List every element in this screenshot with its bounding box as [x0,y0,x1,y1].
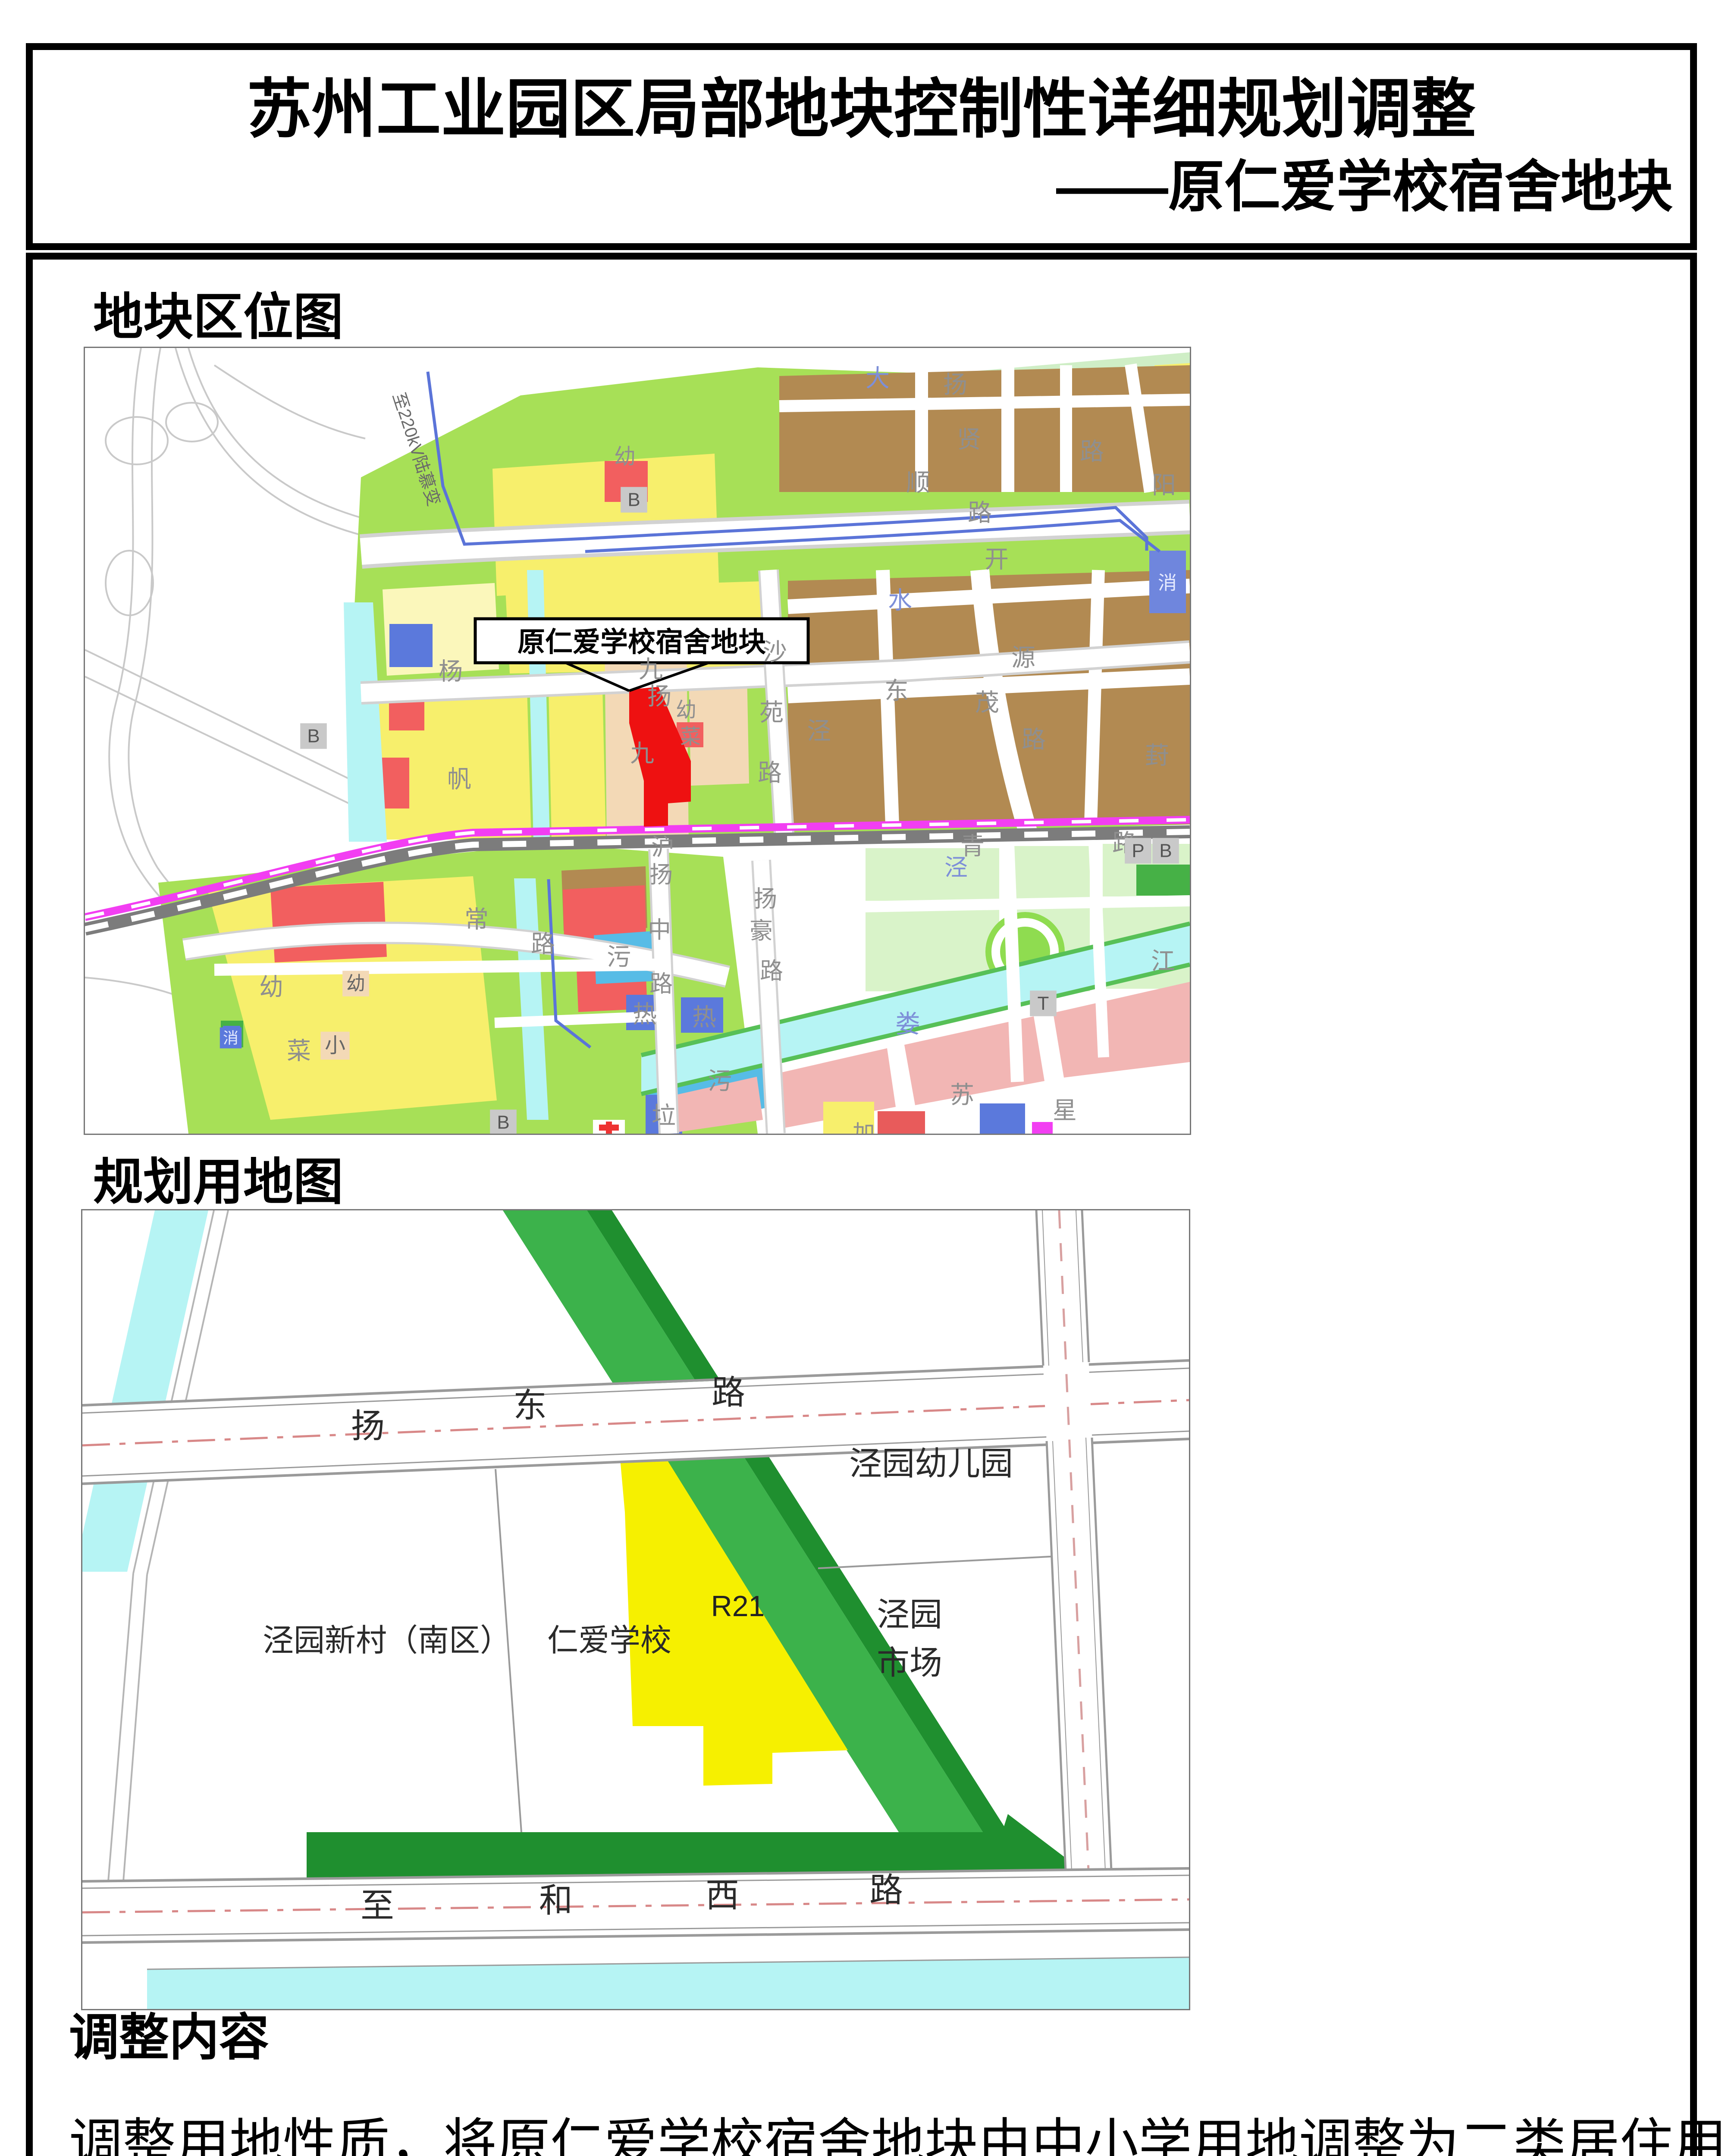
svg-text:苑: 苑 [759,699,784,726]
svg-text:消: 消 [223,1029,238,1047]
svg-text:西: 西 [706,1876,739,1914]
svg-text:路: 路 [968,499,992,526]
svg-text:泾: 泾 [807,718,831,745]
svg-text:帆: 帆 [447,766,471,793]
adjustment-line-1: 调整用地性质，将原仁爱学校宿舍地块由中小学用地调整为二类居住用地 [69,2096,1690,2156]
svg-text:B: B [307,726,320,747]
svg-text:路: 路 [1080,438,1104,465]
svg-text:江: 江 [1151,948,1175,975]
svg-text:消: 消 [1158,573,1177,594]
svg-text:沙: 沙 [763,639,787,666]
svg-text:顺: 顺 [906,469,930,496]
svg-text:娄: 娄 [895,1010,920,1038]
svg-text:幼: 幼 [346,973,365,994]
svg-text:扬: 扬 [754,886,777,912]
page-title: 苏州工业园区局部地块控制性详细规划调整 [33,68,1690,150]
location-map: 原仁爱学校宿舍地块 幼B至220kV陆慕变大扬贤路顺路阳水开东源茂路葑消杨帆沙苑… [84,347,1191,1135]
svg-text:贤: 贤 [957,426,981,453]
title-box: 苏州工业园区局部地块控制性详细规划调整 ——原仁爱学校宿舍地块 [26,43,1697,250]
location-map-heading: 地块区位图 [93,291,343,343]
svg-text:泾园幼儿园: 泾园幼儿园 [849,1446,1013,1482]
planning-map-svg: 扬东路泾园幼儿园泾园市场泾园新村（南区）仁爱学校R21至和西路 [82,1210,1189,2009]
svg-text:幼: 幼 [676,699,696,722]
svg-text:东: 东 [513,1386,547,1424]
park-block [1136,865,1190,896]
svg-text:R21: R21 [711,1590,765,1623]
svg-text:污: 污 [708,1068,732,1095]
svg-text:中: 中 [648,917,671,943]
zhihe-west-road [82,1868,1189,1943]
adjustment-paragraph: 调整用地性质，将原仁爱学校宿舍地块由中小学用地调整为二类居住用地 （宿舍）。原建… [69,2096,1690,2156]
svg-text:茂: 茂 [975,689,999,716]
svg-text:泾园: 泾园 [877,1597,942,1633]
svg-text:源: 源 [1011,644,1035,671]
svg-text:水: 水 [888,587,912,614]
svg-text:扬: 扬 [943,371,967,398]
svg-text:热: 热 [633,1001,657,1028]
svg-text:扬: 扬 [351,1407,385,1445]
svg-text:沪: 沪 [651,834,674,860]
svg-text:B: B [627,489,640,511]
svg-text:和: 和 [539,1881,573,1919]
svg-text:市场: 市场 [877,1645,942,1682]
svg-text:常: 常 [464,906,489,933]
svg-text:菜: 菜 [287,1037,311,1065]
svg-text:开: 开 [985,546,1009,573]
svg-text:幼: 幼 [614,445,636,469]
svg-text:B: B [497,1112,509,1133]
svg-text:幼: 幼 [259,974,283,1001]
svg-text:路: 路 [531,931,555,958]
svg-text:苏: 苏 [950,1081,974,1109]
svg-text:葑: 葑 [1145,742,1169,769]
svg-text:B: B [1159,840,1172,862]
svg-text:大: 大 [866,365,890,392]
svg-text:至: 至 [361,1887,394,1924]
svg-text:P: P [1132,840,1144,862]
svg-text:泾: 泾 [944,855,968,881]
planning-document-page: { "page": { "title": "苏州工业园区局部地块控制性详细规划调… [0,0,1725,2156]
svg-text:路: 路 [712,1373,745,1411]
svg-text:东: 东 [884,677,909,705]
location-map-svg: 原仁爱学校宿舍地块 幼B至220kV陆慕变大扬贤路顺路阳水开东源茂路葑消杨帆沙苑… [85,348,1190,1134]
svg-text:路: 路 [760,958,783,984]
adjustment-heading: 调整内容 [69,2011,269,2064]
svg-text:路: 路 [1022,726,1046,753]
svg-text:小: 小 [325,1034,345,1057]
svg-text:加: 加 [853,1121,875,1134]
svg-text:泾园新村（南区）: 泾园新村（南区） [263,1623,511,1658]
svg-text:路: 路 [649,971,673,997]
svg-text:九: 九 [639,656,663,683]
svg-text:星: 星 [1053,1097,1077,1124]
callout-label: 原仁爱学校宿舍地块 [517,627,766,658]
svg-text:阳: 阳 [1152,472,1176,499]
svg-text:扬: 扬 [649,862,673,888]
svg-text:菜: 菜 [680,726,701,749]
svg-text:路: 路 [869,1871,903,1909]
svg-text:仁爱学校: 仁爱学校 [547,1623,671,1658]
svg-text:垃: 垃 [652,1102,676,1129]
planning-map: 扬东路泾园幼儿园泾园市场泾园新村（南区）仁爱学校R21至和西路 [81,1209,1190,2010]
svg-text:热: 热 [692,1004,716,1031]
planning-map-heading: 规划用地图 [93,1156,343,1208]
svg-text:扬: 扬 [647,683,671,710]
svg-text:污: 污 [607,943,631,971]
hospital-marker [593,1120,625,1134]
svg-text:T: T [1038,993,1049,1014]
page-subtitle: ——原仁爱学校宿舍地块 [33,150,1690,223]
svg-text:九: 九 [630,740,654,767]
svg-text:豪: 豪 [750,918,773,944]
svg-text:路: 路 [758,759,782,787]
svg-text:杨: 杨 [439,658,463,685]
content-box: 地块区位图 [26,253,1697,2156]
